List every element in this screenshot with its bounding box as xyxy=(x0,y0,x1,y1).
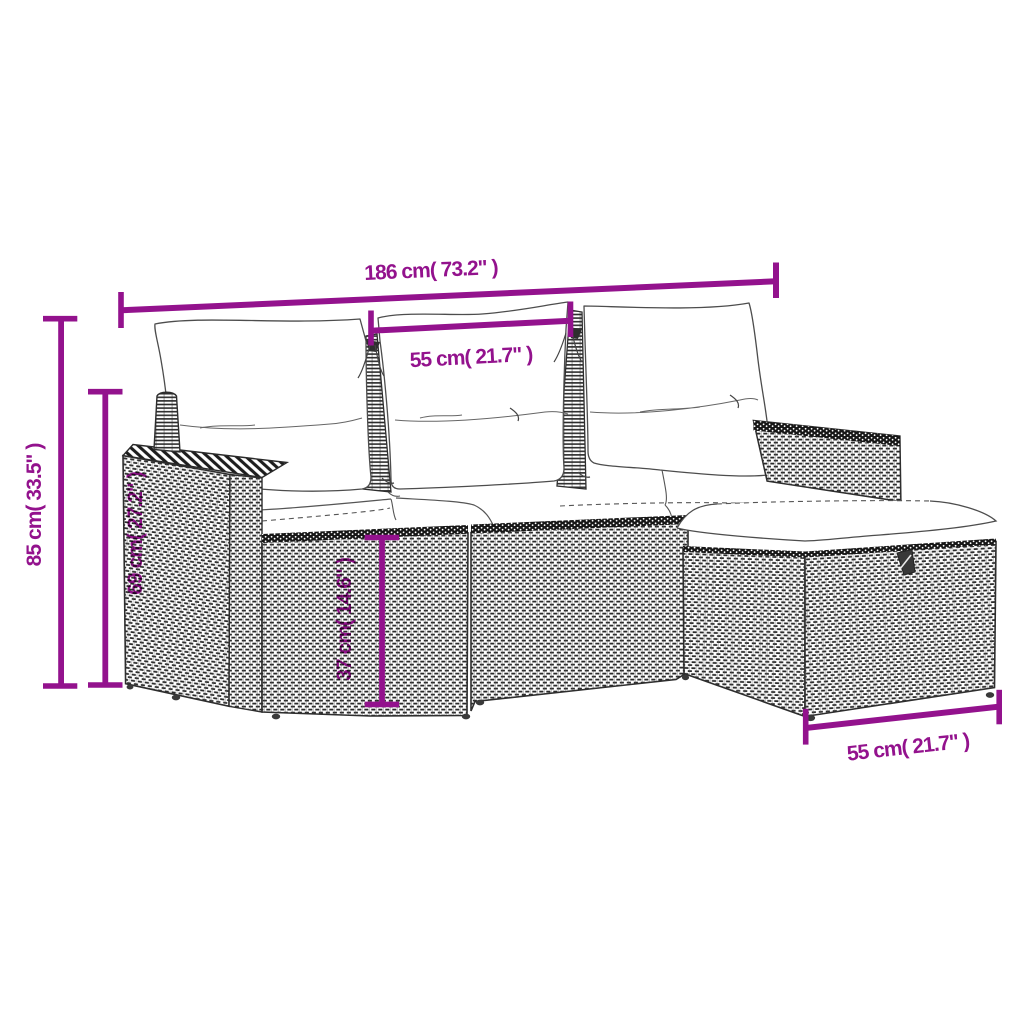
svg-text:69 cm( 27.2" ): 69 cm( 27.2" ) xyxy=(124,472,147,595)
svg-text:37 cm( 14.6" ): 37 cm( 14.6" ) xyxy=(333,558,356,681)
svg-text:85 cm( 33.5" ): 85 cm( 33.5" ) xyxy=(23,444,46,567)
